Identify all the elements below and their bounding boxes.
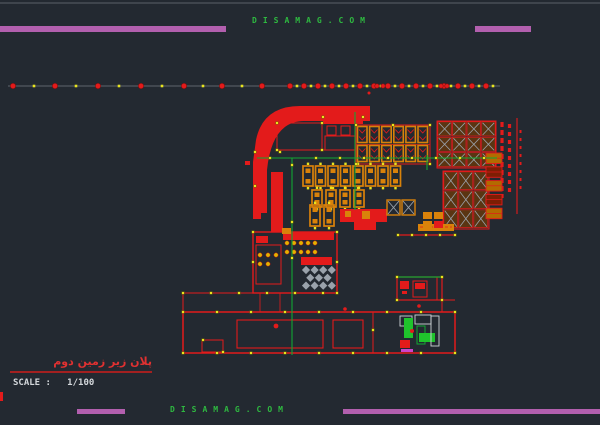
right-room[interactable] <box>397 277 442 300</box>
watermark-bottom: DISAMAG.COM <box>170 405 289 414</box>
bottom-room-block[interactable] <box>183 293 455 353</box>
drawing-title: پلان زیر زمین دوم <box>10 355 152 368</box>
stall-pair-hatched[interactable] <box>387 200 443 228</box>
cad-screenshot: DISAMAG.COM <box>0 0 600 425</box>
mid-corridor[interactable] <box>340 209 387 230</box>
left-edge-tick <box>0 392 3 401</box>
decor-bar-bottom-right <box>343 409 600 414</box>
right-service-boxes <box>486 153 502 219</box>
elevator-checker-hatch <box>302 266 336 290</box>
scale-text: SCALE : 1/100 <box>13 378 94 388</box>
vertical-dimension-text <box>502 118 521 214</box>
escalator-equipment[interactable] <box>400 315 439 352</box>
title-underline <box>10 371 152 373</box>
decor-bar-bottom-left <box>77 409 125 414</box>
service-core[interactable] <box>253 228 337 293</box>
dimension-grid-line[interactable] <box>8 83 500 88</box>
